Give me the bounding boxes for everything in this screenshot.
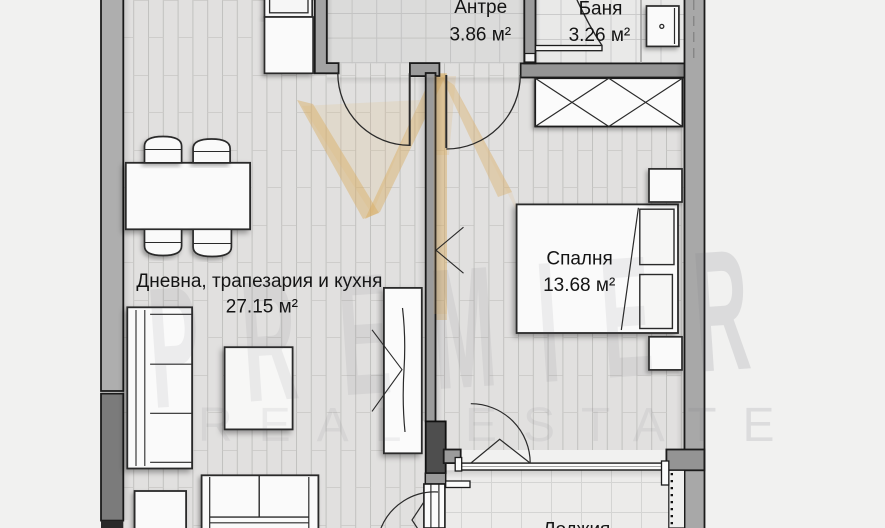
svg-text:Антре: Антре [454,0,507,18]
svg-text:3.26 м²: 3.26 м² [569,25,631,46]
svg-text:Лоджия: Лоджия [543,520,610,528]
svg-text:Баня: Баня [579,0,623,20]
svg-text:3.86 м²: 3.86 м² [449,25,511,46]
